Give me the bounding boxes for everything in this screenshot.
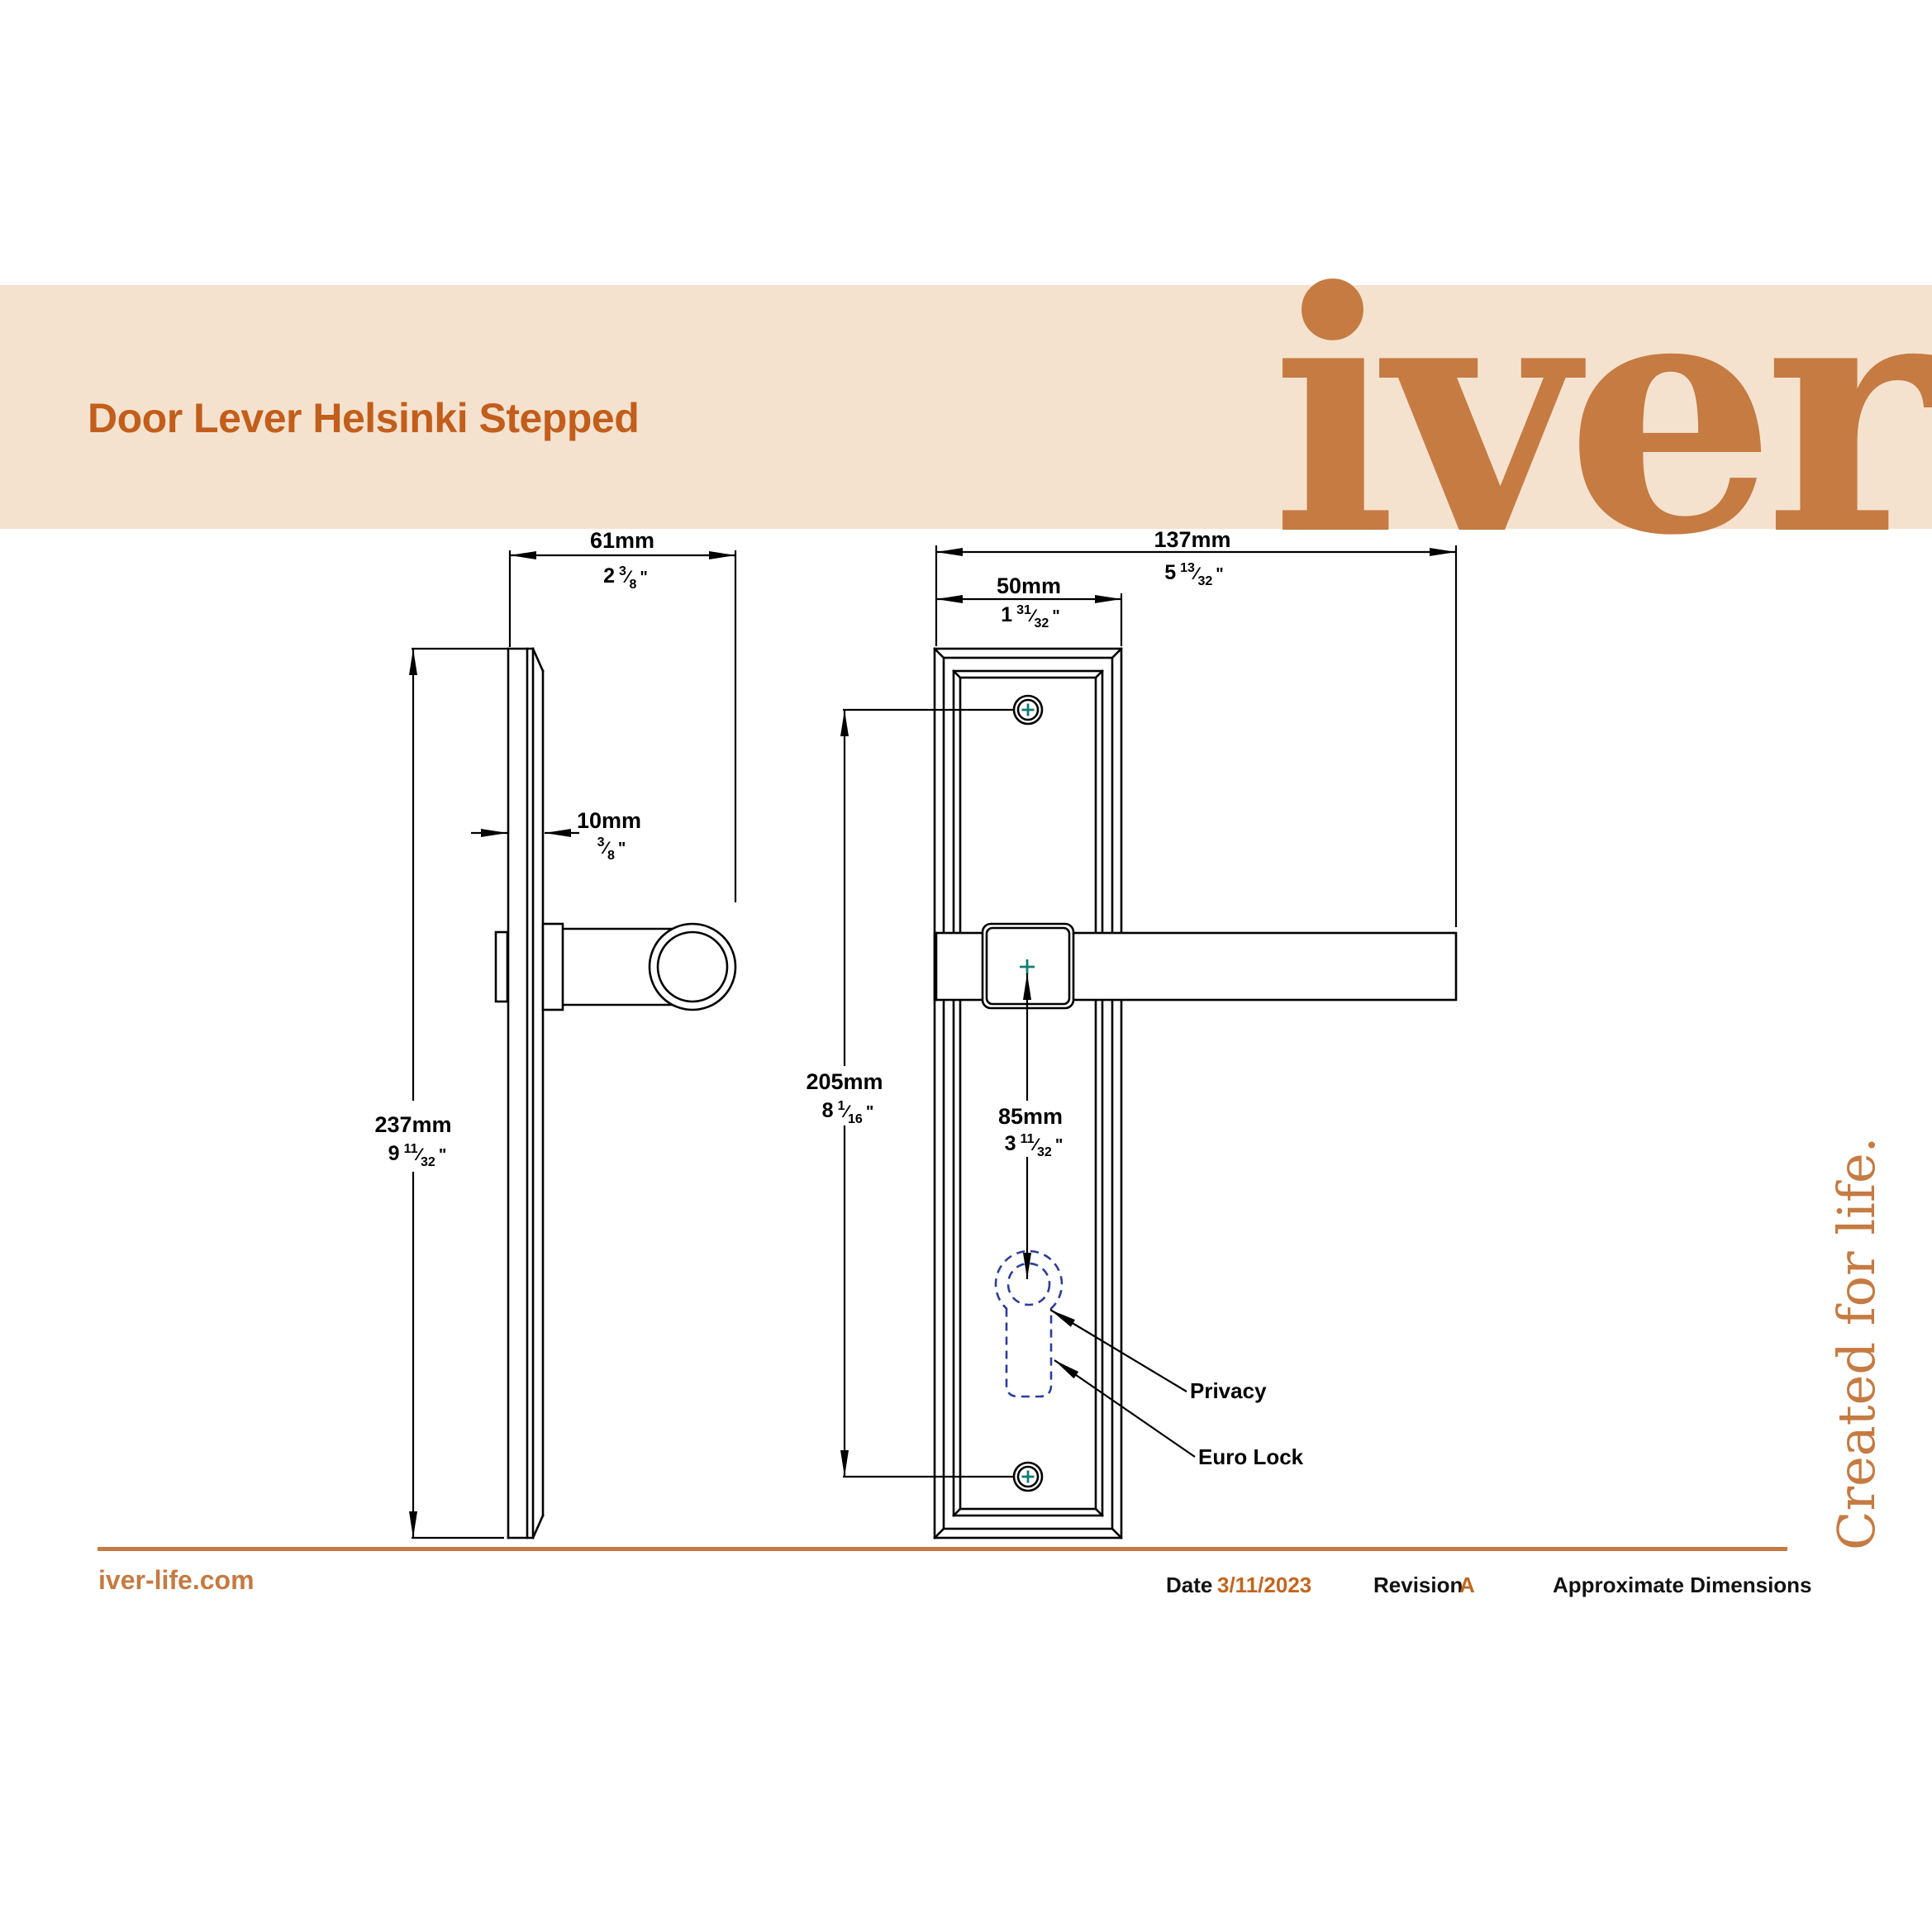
callout-privacy: Privacy: [1050, 1310, 1267, 1403]
dim-projection-imperial: 2 3⁄8 ": [603, 564, 648, 592]
revision-value: A: [1459, 1573, 1475, 1598]
dim-screw-centres: 205mm 8 1⁄16 ": [806, 710, 1014, 1477]
keyhole-euro-profile: [996, 1251, 1062, 1397]
side-lever-end-outer: [650, 924, 735, 1010]
brand-logo: iver: [1271, 220, 1932, 608]
website-link: iver-life.com: [98, 1565, 255, 1596]
privacy-label: Privacy: [1190, 1378, 1267, 1403]
brand-tagline: Created for life.: [1826, 1137, 1887, 1550]
top-screw: [1014, 696, 1042, 724]
bottom-screw: [1014, 1463, 1042, 1491]
dim-screw-centres-metric: 205mm: [806, 1069, 883, 1094]
date-label: Date: [1166, 1573, 1212, 1598]
side-lever-neck: [543, 924, 563, 1010]
dim-plate-width-imperial: 1 31⁄32 ": [1001, 603, 1060, 631]
date-value: 3/11/2023: [1217, 1573, 1311, 1598]
euro-lock-label: Euro Lock: [1198, 1444, 1304, 1469]
dim-lever-to-keyhole-metric: 85mm: [998, 1104, 1063, 1129]
dim-thickness-metric: 10mm: [577, 808, 641, 833]
callout-euro-lock: Euro Lock: [1054, 1360, 1304, 1469]
dim-thickness-imperial: 3⁄8 ": [597, 835, 626, 863]
dim-plate-width-metric: 50mm: [997, 573, 1061, 598]
dim-plate-height-metric: 237mm: [374, 1112, 451, 1137]
front-view: [935, 649, 1456, 1538]
approximate-dimensions-note: Approximate Dimensions: [1553, 1573, 1812, 1598]
dimensions: 61mm 2 3⁄8 " 10mm 3⁄8 " 237mm 9 11⁄32 " …: [374, 527, 1456, 1538]
euro-lock-outline: [996, 1251, 1062, 1397]
dim-plate-width: 50mm 1 31⁄32 ": [936, 573, 1121, 646]
technical-drawing: iver Created for life.: [0, 0, 1932, 1932]
footer-rule: [98, 1547, 1787, 1551]
dim-thickness: 10mm 3⁄8 ": [471, 808, 641, 863]
spec-sheet-page: { "banner": { "title": "Door Lever Helsi…: [0, 0, 1932, 1932]
side-lever: [543, 924, 735, 1010]
dim-plate-height: 237mm 9 11⁄32 ": [374, 649, 507, 1538]
front-lever: [935, 924, 1456, 1008]
dim-projection-metric: 61mm: [590, 528, 654, 553]
revision-label: Revision: [1373, 1573, 1463, 1598]
privacy-hole-outline: [1008, 1263, 1049, 1305]
dim-lever-to-keyhole: 85mm 3 11⁄32 ": [998, 973, 1063, 1279]
dim-overall-length-imperial: 5 13⁄32 ": [1164, 561, 1224, 588]
side-latch-button: [496, 932, 507, 1002]
side-view: [496, 649, 735, 1538]
dim-screw-centres-imperial: 8 1⁄16 ": [822, 1099, 874, 1126]
dim-plate-height-imperial: 9 11⁄32 ": [388, 1142, 447, 1169]
side-plate: [508, 649, 543, 1538]
dim-lever-to-keyhole-imperial: 3 11⁄32 ": [1005, 1132, 1064, 1159]
dim-overall-length-metric: 137mm: [1154, 527, 1230, 552]
